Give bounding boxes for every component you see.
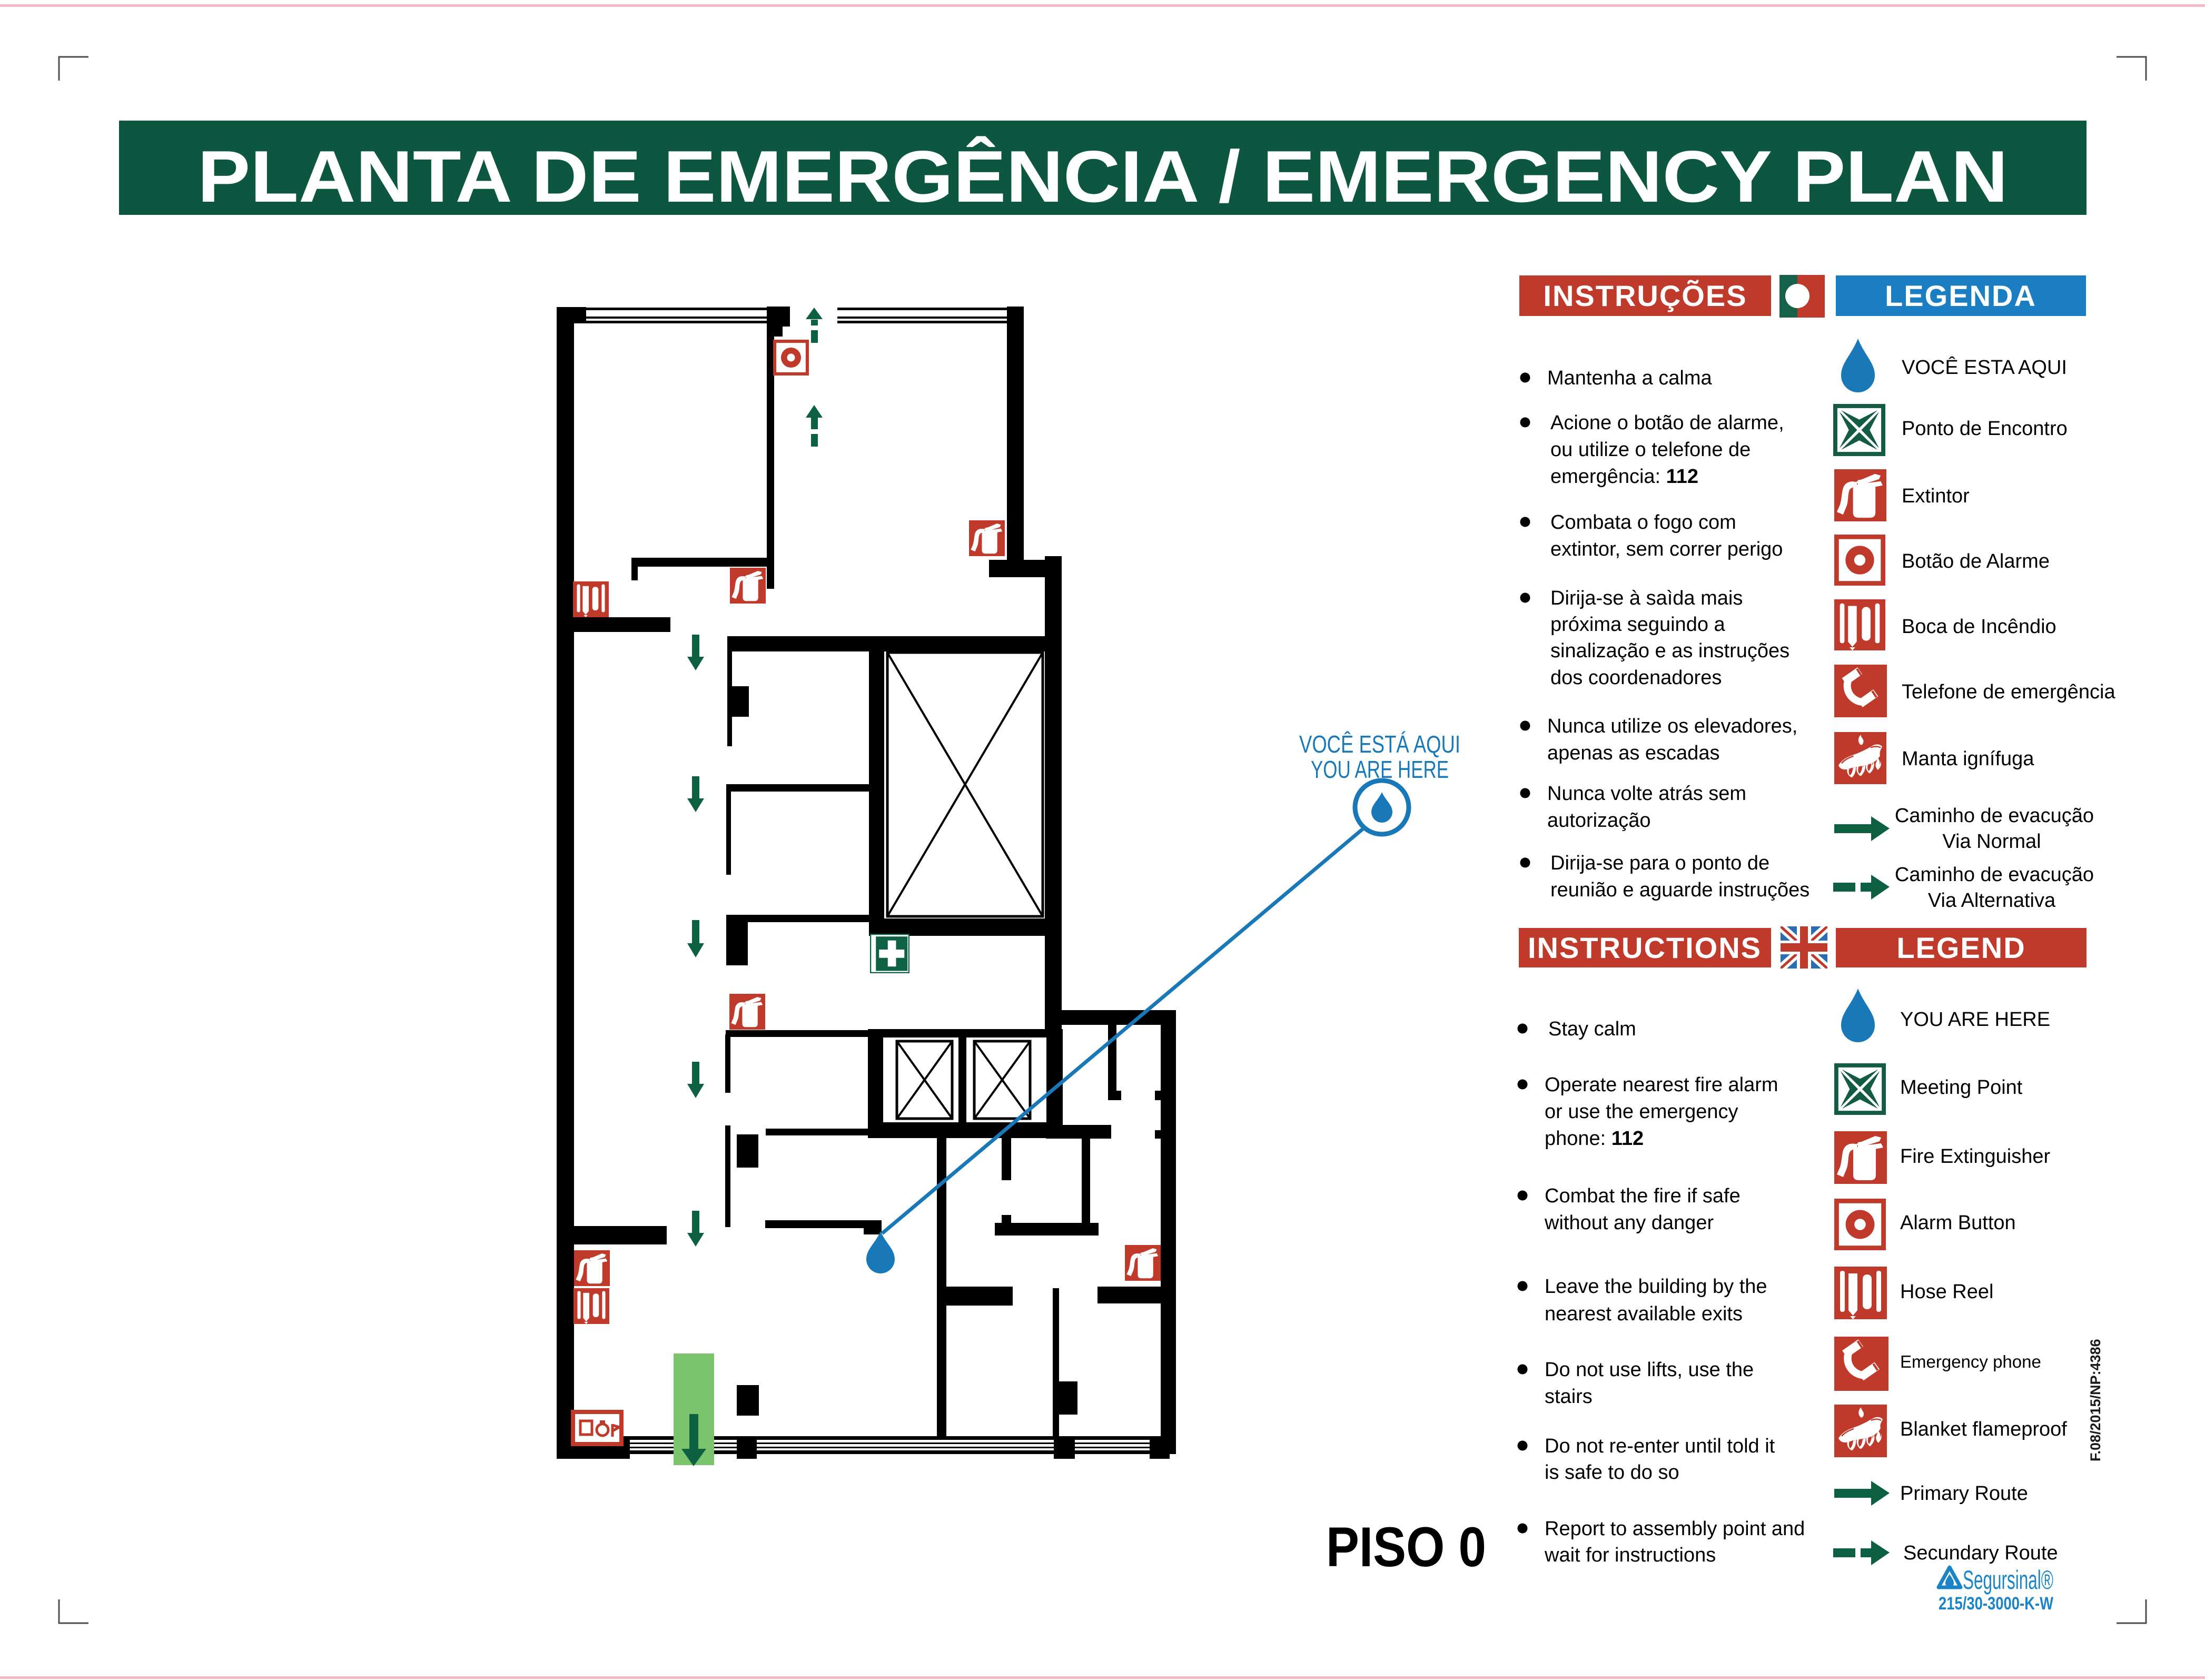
svg-text:sinalização e as instruções: sinalização e as instruções	[1550, 640, 1789, 662]
svg-text:LEGENDA: LEGENDA	[1885, 279, 2036, 312]
svg-text:Segursinal®: Segursinal®	[1963, 1565, 2053, 1595]
svg-text:Manta ignífuga: Manta ignífuga	[1902, 748, 2034, 770]
svg-text:Secundary Route: Secundary Route	[1903, 1542, 2058, 1564]
svg-text:Via Normal: Via Normal	[1942, 831, 2041, 853]
svg-text:Emergency phone: Emergency phone	[1900, 1352, 2041, 1371]
svg-text:Ponto de Encontro: Ponto de Encontro	[1902, 418, 2068, 440]
svg-text:Via Alternativa: Via Alternativa	[1928, 890, 2056, 912]
svg-text:Dirija-se para o ponto de: Dirija-se para o ponto de	[1550, 852, 1769, 874]
svg-text:Do not re-enter until told it: Do not re-enter until told it	[1545, 1435, 1775, 1457]
svg-text:reunião e aguarde instruções: reunião e aguarde instruções	[1550, 879, 1810, 901]
svg-text:Fire Extinguisher: Fire Extinguisher	[1900, 1145, 2050, 1168]
svg-text:Hose Reel: Hose Reel	[1900, 1281, 1993, 1303]
svg-text:Caminho de evacução: Caminho de evacução	[1895, 805, 2094, 827]
svg-text:dos coordenadores: dos coordenadores	[1550, 667, 1722, 689]
svg-text:INSTRUÇÕES: INSTRUÇÕES	[1543, 279, 1747, 312]
svg-text:PISO 0: PISO 0	[1326, 1515, 1486, 1578]
svg-text:INSTRUCTIONS: INSTRUCTIONS	[1528, 931, 1762, 964]
svg-text:without any danger: without any danger	[1544, 1212, 1714, 1234]
svg-text:stairs: stairs	[1545, 1386, 1593, 1408]
svg-text:Dirija-se à saìda mais: Dirija-se à saìda mais	[1550, 587, 1743, 609]
svg-text:Boca de Incêndio: Boca de Incêndio	[1902, 616, 2056, 638]
svg-text:apenas as escadas: apenas as escadas	[1547, 742, 1719, 764]
svg-text:Blanket flameproof: Blanket flameproof	[1900, 1418, 2067, 1440]
svg-text:Nunca volte atrás sem: Nunca volte atrás sem	[1547, 783, 1746, 805]
svg-text:YOU ARE HERE: YOU ARE HERE	[1900, 1009, 2050, 1031]
svg-text:Acione o botão de alarme,: Acione o botão de alarme,	[1550, 412, 1784, 434]
svg-text:Botão de Alarme: Botão de Alarme	[1902, 550, 2050, 572]
svg-text:PLANTA DE EMERGÊNCIA / EMERGEN: PLANTA DE EMERGÊNCIA / EMERGENCY PLAN	[197, 136, 2008, 218]
svg-text:VOCÊ ESTA AQUI: VOCÊ ESTA AQUI	[1902, 356, 2067, 379]
svg-text:LEGEND: LEGEND	[1896, 931, 2025, 964]
svg-text:phone: 112: phone: 112	[1545, 1128, 1644, 1150]
svg-text:Telefone de emergência: Telefone de emergência	[1902, 681, 2115, 703]
svg-text:Caminho de evacução: Caminho de evacução	[1895, 864, 2094, 886]
svg-text:VOCÊ ESTÁ AQUI: VOCÊ ESTÁ AQUI	[1299, 730, 1460, 758]
svg-text:Combat the fire if safe: Combat the fire if safe	[1545, 1185, 1741, 1207]
svg-text:extintor, sem correr perigo: extintor, sem correr perigo	[1550, 538, 1783, 560]
svg-text:is safe to do so: is safe to do so	[1545, 1461, 1679, 1484]
svg-text:Primary Route: Primary Route	[1900, 1483, 2028, 1505]
svg-text:Nunca utilize os elevadores,: Nunca utilize os elevadores,	[1547, 715, 1797, 737]
svg-text:F.08/2015/NP:4386: F.08/2015/NP:4386	[2088, 1339, 2103, 1461]
svg-text:Report to assembly point and: Report to assembly point and	[1545, 1518, 1805, 1540]
svg-text:ou utilize o telefone de: ou utilize o telefone de	[1550, 439, 1751, 461]
svg-text:emergência: 112: emergência: 112	[1550, 466, 1698, 488]
svg-text:YOU ARE HERE: YOU ARE HERE	[1311, 756, 1449, 783]
svg-text:Meeting Point: Meeting Point	[1900, 1076, 2023, 1099]
svg-text:Operate nearest fire alarm: Operate nearest fire alarm	[1545, 1074, 1778, 1096]
svg-text:Alarm Button: Alarm Button	[1900, 1212, 2016, 1234]
svg-text:próxima seguindo a: próxima seguindo a	[1550, 614, 1726, 636]
svg-text:autorização: autorização	[1547, 809, 1650, 832]
svg-text:Extintor: Extintor	[1902, 485, 1970, 507]
svg-text:215/30-3000-K-W: 215/30-3000-K-W	[1939, 1594, 2054, 1614]
svg-text:Mantenha a calma: Mantenha a calma	[1547, 367, 1712, 389]
svg-text:wait for instructions: wait for instructions	[1544, 1544, 1716, 1566]
svg-text:Do not use lifts, use the: Do not use lifts, use the	[1545, 1359, 1754, 1381]
svg-text:Leave the building by the: Leave the building by the	[1545, 1276, 1767, 1298]
svg-text:or use the emergency: or use the emergency	[1545, 1101, 1738, 1123]
svg-text:Combata o fogo com: Combata o fogo com	[1550, 511, 1736, 533]
svg-text:nearest available exits: nearest available exits	[1545, 1303, 1743, 1325]
svg-text:Stay calm: Stay calm	[1548, 1018, 1636, 1040]
